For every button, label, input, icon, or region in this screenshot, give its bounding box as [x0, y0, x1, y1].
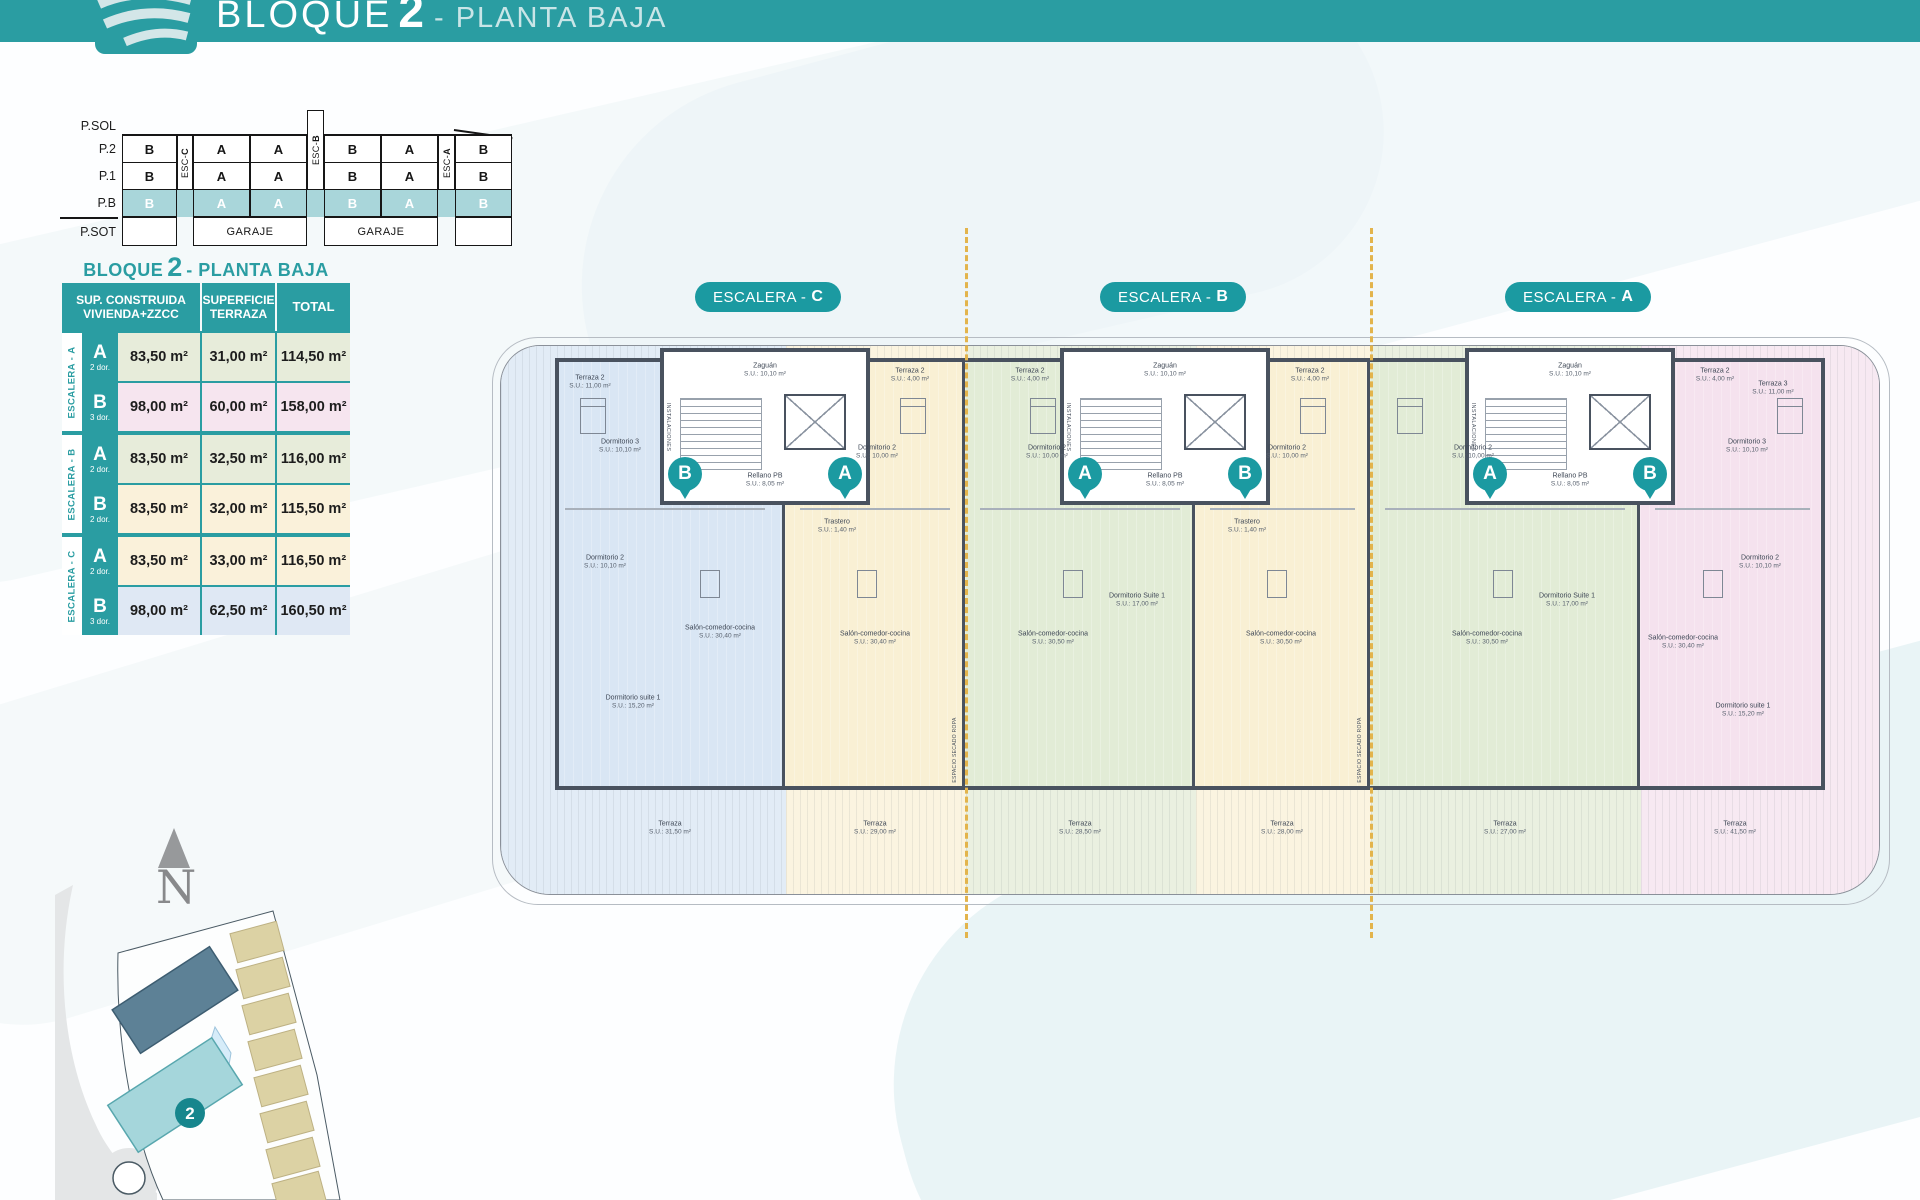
- unit-badge-a: A: [828, 457, 862, 491]
- surface-table: BLOQUE2- PLANTA BAJA SUP. CONSTRUIDAVIVI…: [60, 252, 352, 644]
- group-label-escalera-b: ESCALERA - B: [62, 435, 82, 533]
- room-label: TrasteroS.U.: 1,40 m²: [1228, 518, 1266, 535]
- col-header-construida: SUP. CONSTRUIDAVIVIENDA+ZZCC: [62, 283, 200, 331]
- table-icon: [700, 570, 720, 598]
- room-label: Salón-comedor-cocinaS.U.: 30,40 m²: [840, 630, 910, 647]
- col-header-terraza: SUPERFICIETERRAZA: [202, 283, 275, 331]
- construida-value: 98,00 m²: [118, 383, 200, 431]
- table-icon: [1493, 570, 1513, 598]
- basement-cell: [122, 217, 177, 246]
- stack-cell-pb: B: [122, 189, 177, 217]
- elevator-icon: [1589, 394, 1651, 450]
- col-header-total: TOTAL: [277, 283, 350, 331]
- floor-label: P.SOL: [60, 119, 116, 133]
- interior-wall: [1655, 508, 1810, 510]
- stair-column-b: ESC-B: [307, 110, 324, 190]
- table-icon: [1703, 570, 1723, 598]
- room-label: Dormitorio 3S.U.: 10,10 m²: [1726, 438, 1768, 455]
- unit-badge-a: A: [1473, 457, 1507, 491]
- stack-cell-pb: A: [381, 189, 438, 217]
- construida-value: 83,50 m²: [118, 485, 200, 533]
- table-icon: [1267, 570, 1287, 598]
- unit-badge-b: B: [668, 457, 702, 491]
- terrace-label: TerrazaS.U.: 31,50 m²: [649, 820, 691, 837]
- secado-label: ESPACIO SECADO ROPA: [1357, 717, 1363, 782]
- terrace-label: Terraza 2S.U.: 4,00 m²: [1291, 367, 1329, 384]
- terrace-label: TerrazaS.U.: 28,00 m²: [1261, 820, 1303, 837]
- total-value: 158,00 m²: [277, 383, 350, 431]
- room-label: Salón-comedor-cocinaS.U.: 30,50 m²: [1246, 630, 1316, 647]
- stack-cell: A: [250, 135, 307, 163]
- unit-badge-b: B: [1633, 457, 1667, 491]
- stair-core-c: ZaguánS.U.: 10,10 m² Rellano PBS.U.: 8,0…: [660, 348, 870, 505]
- instalaciones-label: INSTALACIONES: [665, 402, 671, 451]
- garage-cell: GARAJE: [324, 217, 438, 246]
- building-stack-diagram: P.SOL P.2 P.1 P.B P.SOT B A A B A B B A …: [60, 88, 530, 253]
- unit-letter-cell: B2 dor.: [82, 485, 118, 533]
- table-icon: [857, 570, 877, 598]
- terrace-label: TerrazaS.U.: 27,00 m²: [1484, 820, 1526, 837]
- stack-cell: B: [324, 162, 381, 190]
- elevator-icon: [1184, 394, 1246, 450]
- terraza-value: 33,00 m²: [202, 537, 275, 585]
- floor-label: P.1: [60, 169, 116, 183]
- construida-value: 98,00 m²: [118, 587, 200, 635]
- terraza-value: 62,50 m²: [202, 587, 275, 635]
- title-number: 2: [398, 0, 424, 37]
- stair-column-c: ESC-C: [177, 135, 193, 190]
- unit-letter-cell: A2 dor.: [82, 333, 118, 381]
- interior-wall: [1385, 508, 1625, 510]
- table-icon: [1063, 570, 1083, 598]
- stack-cell: A: [193, 162, 250, 190]
- stair-column-a: ESC-A: [438, 135, 455, 190]
- room-label: Dormitorio Suite 1S.U.: 17,00 m²: [1109, 592, 1165, 609]
- interior-wall: [1210, 508, 1355, 510]
- title-block: BLOQUE: [216, 0, 392, 36]
- title-floor: - PLANTA BAJA: [434, 2, 667, 34]
- construida-value: 83,50 m²: [118, 435, 200, 483]
- stack-cell: A: [381, 135, 438, 163]
- interior-wall: [800, 508, 950, 510]
- stack-cell-pb: A: [250, 189, 307, 217]
- block-2-number: 2: [185, 1104, 194, 1123]
- total-value: 114,50 m²: [277, 333, 350, 381]
- escalera-a-pill: ESCALERA - A: [1505, 282, 1651, 312]
- terraza-value: 32,00 m²: [202, 485, 275, 533]
- terrace-label: Terraza 2S.U.: 4,00 m²: [1696, 367, 1734, 384]
- stair-core-b: ZaguánS.U.: 10,10 m² Rellano PBS.U.: 8,0…: [1060, 348, 1270, 505]
- roundabout: [113, 1162, 145, 1194]
- escalera-c-pill: ESCALERA - C: [695, 282, 841, 312]
- terrace-label: TerrazaS.U.: 41,50 m²: [1714, 820, 1756, 837]
- terrace-label: TerrazaS.U.: 29,00 m²: [854, 820, 896, 837]
- stack-cell: B: [324, 135, 381, 163]
- bed-icon: [1300, 398, 1326, 434]
- garage-cell: GARAJE: [193, 217, 307, 246]
- room-label: TrasteroS.U.: 1,40 m²: [818, 518, 856, 535]
- construida-value: 83,50 m²: [118, 537, 200, 585]
- room-label: Dormitorio 2S.U.: 10,00 m²: [1452, 444, 1494, 461]
- room-label: Dormitorio 2S.U.: 10,10 m²: [1739, 554, 1781, 571]
- pb-band: [122, 189, 512, 217]
- room-label: Dormitorio 3S.U.: 10,10 m²: [599, 438, 641, 455]
- room-label: Dormitorio 2S.U.: 10,00 m²: [1026, 444, 1068, 461]
- room-label: Dormitorio suite 1S.U.: 15,20 m²: [1716, 702, 1771, 719]
- bed-icon: [1397, 398, 1423, 434]
- basement-cell: [455, 217, 512, 246]
- stack-cell: B: [122, 135, 177, 163]
- site-map: 2: [55, 815, 355, 1200]
- unit-badge-a: A: [1068, 457, 1102, 491]
- floor-label: P.SOT: [60, 225, 116, 239]
- section-divider: [965, 228, 968, 938]
- terrace-label: Terraza 2S.U.: 4,00 m²: [891, 367, 929, 384]
- total-value: 116,00 m²: [277, 435, 350, 483]
- unit-letter-cell: B3 dor.: [82, 587, 118, 635]
- stack-cell: B: [122, 162, 177, 190]
- north-letter: N: [156, 860, 196, 914]
- terrace-label: TerrazaS.U.: 28,50 m²: [1059, 820, 1101, 837]
- wave-logo-icon: [95, 0, 197, 54]
- bed-icon: [900, 398, 926, 434]
- total-value: 115,50 m²: [277, 485, 350, 533]
- elevator-icon: [784, 394, 846, 450]
- room-label: Dormitorio Suite 1S.U.: 17,00 m²: [1539, 592, 1595, 609]
- total-value: 160,50 m²: [277, 587, 350, 635]
- unit-letter-cell: A2 dor.: [82, 537, 118, 585]
- brand-logo: [95, 0, 197, 54]
- group-label-escalera-a: ESCALERA - A: [62, 333, 82, 431]
- stack-cell-pb: B: [455, 189, 512, 217]
- stack-cell: A: [381, 162, 438, 190]
- unit-letter-cell: A2 dor.: [82, 435, 118, 483]
- bed-icon: [580, 398, 606, 434]
- room-label: Dormitorio 2S.U.: 10,00 m²: [856, 444, 898, 461]
- stack-cell: B: [455, 135, 512, 163]
- stack-cell: A: [250, 162, 307, 190]
- room-label: Dormitorio 2S.U.: 10,10 m²: [584, 554, 626, 571]
- stack-cell: A: [193, 135, 250, 163]
- floor-label: P.B: [60, 196, 116, 210]
- room-label: Salón-comedor-cocinaS.U.: 30,40 m²: [1648, 634, 1718, 651]
- room-label: Dormitorio 2S.U.: 10,00 m²: [1266, 444, 1308, 461]
- stack-cell-pb: B: [324, 189, 381, 217]
- page-title: BLOQUE2- PLANTA BAJA: [216, 0, 667, 38]
- room-label: Salón-comedor-cocinaS.U.: 30,50 m²: [1018, 630, 1088, 647]
- room-label: Salón-comedor-cocinaS.U.: 30,40 m²: [685, 624, 755, 641]
- bed-icon: [1777, 398, 1803, 434]
- terraza-value: 31,00 m²: [202, 333, 275, 381]
- total-value: 116,50 m²: [277, 537, 350, 585]
- construida-value: 83,50 m²: [118, 333, 200, 381]
- stack-cell-pb: A: [193, 189, 250, 217]
- brochure-page: { "colors":{"teal":"#2a9da2","teal_dark"…: [0, 0, 1920, 1200]
- stack-cell: B: [455, 162, 512, 190]
- interior-wall: [980, 508, 1180, 510]
- group-label-escalera-c: ESCALERA - C: [62, 537, 82, 635]
- unit-badge-b: B: [1228, 457, 1262, 491]
- terrace-label: Terraza 2S.U.: 4,00 m²: [1011, 367, 1049, 384]
- table-title: BLOQUE2- PLANTA BAJA: [60, 252, 352, 283]
- section-divider: [1370, 228, 1373, 938]
- interior-wall: [565, 508, 765, 510]
- floor-plan: ZaguánS.U.: 10,10 m² Rellano PBS.U.: 8,0…: [485, 270, 1895, 970]
- room-label: Salón-comedor-cocinaS.U.: 30,50 m²: [1452, 630, 1522, 647]
- unit-letter-cell: B3 dor.: [82, 383, 118, 431]
- floor-label: P.2: [60, 142, 116, 156]
- terrace-label: Terraza 2S.U.: 11,00 m²: [569, 374, 610, 391]
- terraza-value: 60,00 m²: [202, 383, 275, 431]
- ground-line: [60, 217, 118, 219]
- bed-icon: [1030, 398, 1056, 434]
- secado-label: ESPACIO SECADO ROPA: [952, 717, 958, 782]
- stair-core-a: ZaguánS.U.: 10,10 m² Rellano PBS.U.: 8,0…: [1465, 348, 1675, 505]
- terrace-label: Terraza 3S.U.: 11,00 m²: [1752, 380, 1793, 397]
- room-label: Dormitorio suite 1S.U.: 15,20 m²: [606, 694, 661, 711]
- terraza-value: 32,50 m²: [202, 435, 275, 483]
- escalera-b-pill: ESCALERA - B: [1100, 282, 1246, 312]
